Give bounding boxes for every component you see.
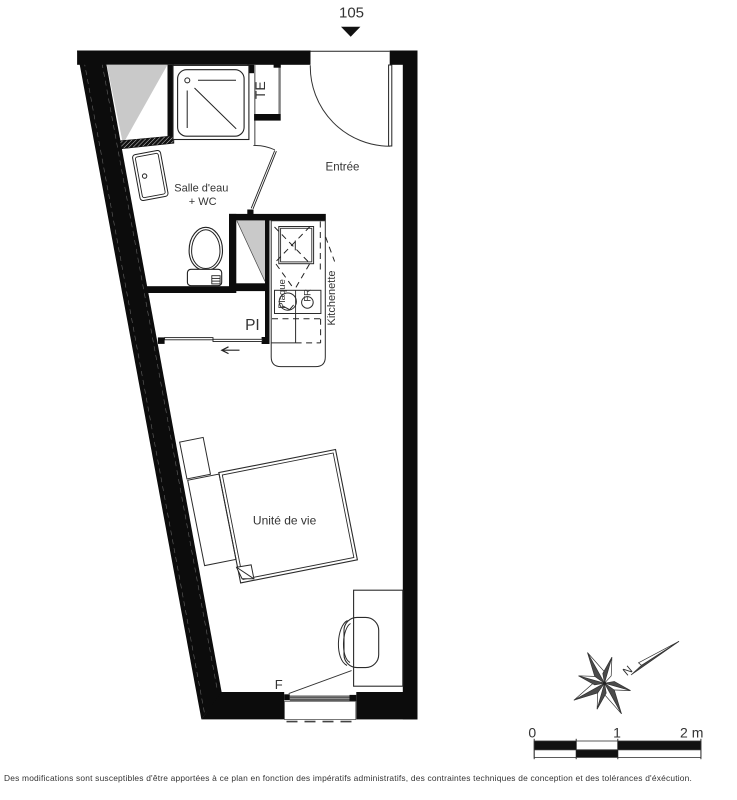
svg-text:0: 0 — [528, 725, 536, 741]
svg-text:F: F — [275, 677, 283, 692]
svg-text:PI: PI — [245, 317, 260, 334]
svg-text:Kitchenette: Kitchenette — [326, 270, 338, 325]
svg-text:Unité de vie: Unité de vie — [253, 514, 317, 528]
svg-text:TE: TE — [252, 81, 268, 99]
svg-text:1: 1 — [613, 725, 621, 741]
svg-text:Des modifications sont suscept: Des modifications sont susceptibles d'êt… — [4, 773, 692, 783]
svg-text:Salle d'eau: Salle d'eau — [174, 183, 228, 195]
svg-text:Entrée: Entrée — [326, 162, 360, 174]
svg-text:Plaque: Plaque — [277, 279, 288, 309]
svg-text:FR: FR — [302, 289, 313, 302]
svg-text:+ WC: + WC — [189, 196, 217, 208]
svg-text:105: 105 — [339, 5, 364, 22]
svg-text:2 m: 2 m — [680, 725, 703, 741]
